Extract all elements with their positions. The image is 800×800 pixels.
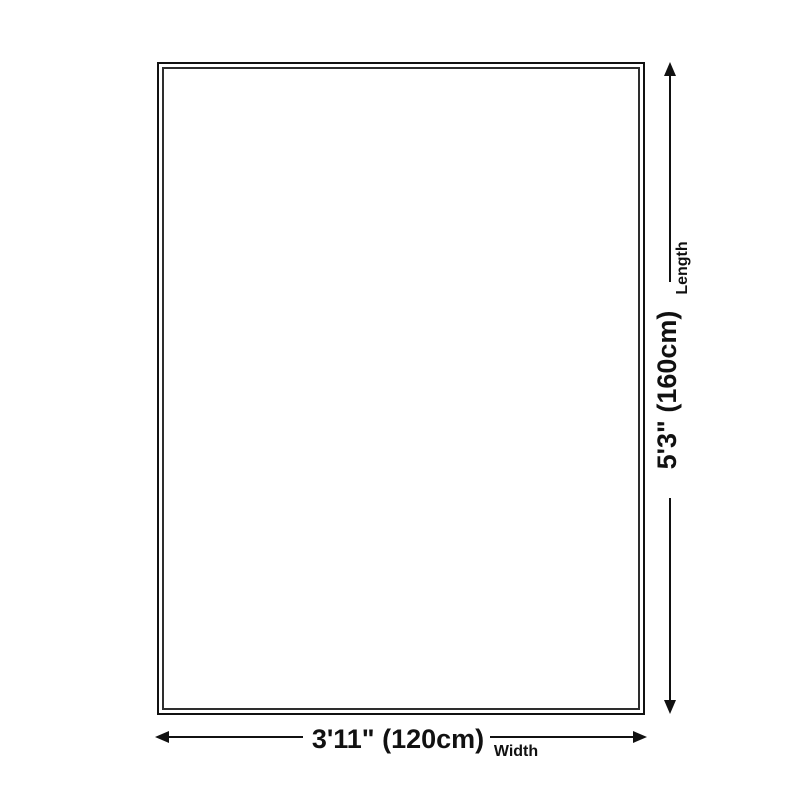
- rug-outline-outer: [157, 62, 645, 715]
- length-arrow-line-top: [669, 74, 671, 282]
- width-arrow-line-left: [167, 736, 303, 738]
- rug-dimension-diagram: 5'3" (160cm) Length 3'11" (120cm) Width: [0, 0, 800, 800]
- rug-outline-inner: [162, 67, 640, 710]
- arrow-right-icon: [633, 731, 647, 743]
- width-label: Width: [476, 743, 556, 761]
- arrow-down-icon: [664, 700, 676, 714]
- width-value: 3'11" (120cm): [298, 724, 498, 754]
- length-label: Length: [674, 228, 692, 308]
- length-arrow-line-bottom: [669, 498, 671, 702]
- length-value: 5'3" (160cm): [652, 290, 682, 490]
- arrow-left-icon: [155, 731, 169, 743]
- arrow-up-icon: [664, 62, 676, 76]
- width-arrow-line-right: [490, 736, 643, 738]
